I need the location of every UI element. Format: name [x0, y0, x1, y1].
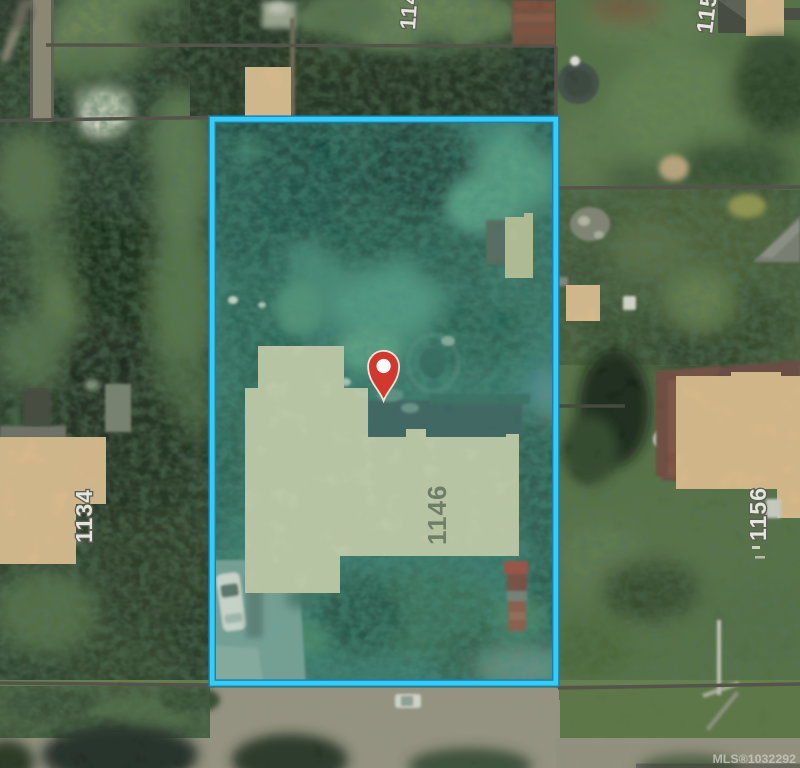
- svg-text:MLS®1032292: MLS®1032292: [712, 752, 796, 766]
